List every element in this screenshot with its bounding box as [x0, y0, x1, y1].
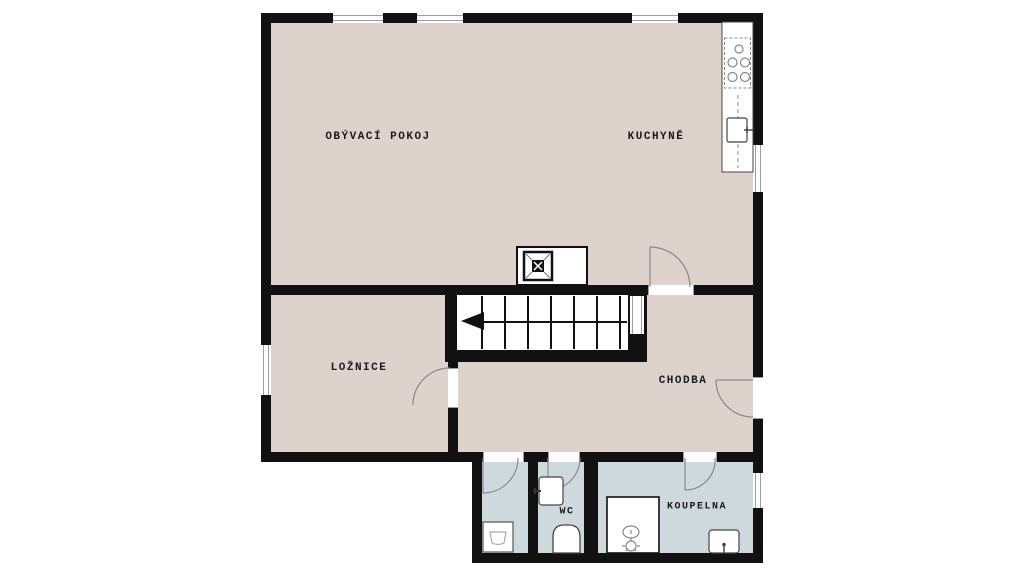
room-label-bedroom: LOŽNICE: [331, 362, 388, 374]
bathroom-door-swing: [685, 458, 715, 490]
entrance-door-swing: [716, 380, 753, 417]
floor-plan: OBÝVACÍ POKOJ KUCHYNĚ LOŽNICE CHODBA WC …: [0, 0, 1024, 576]
room-label-bathroom: KOUPELNA: [667, 502, 727, 513]
symbols-overlay: [0, 0, 1024, 576]
washing-machine: [483, 522, 513, 552]
bathroom-sink: [709, 530, 739, 553]
room-label-living-room: OBÝVACÍ POKOJ: [325, 131, 430, 143]
stair-arrow: [461, 312, 484, 330]
chimney-stove: [517, 247, 587, 285]
room-label-kitchen: KUCHYNĚ: [628, 131, 685, 143]
storage-door-swing: [483, 458, 518, 493]
room-label-wc: WC: [559, 507, 574, 518]
staircase: [461, 296, 627, 349]
toilet: [553, 525, 580, 553]
kitchen-counter: [722, 22, 753, 172]
shower: [607, 497, 659, 553]
living-room-door-swing: [650, 247, 690, 287]
room-label-hallway: CHODBA: [659, 375, 708, 387]
wc-hand-basin: [533, 477, 563, 505]
bedroom-door-swing: [413, 368, 450, 405]
